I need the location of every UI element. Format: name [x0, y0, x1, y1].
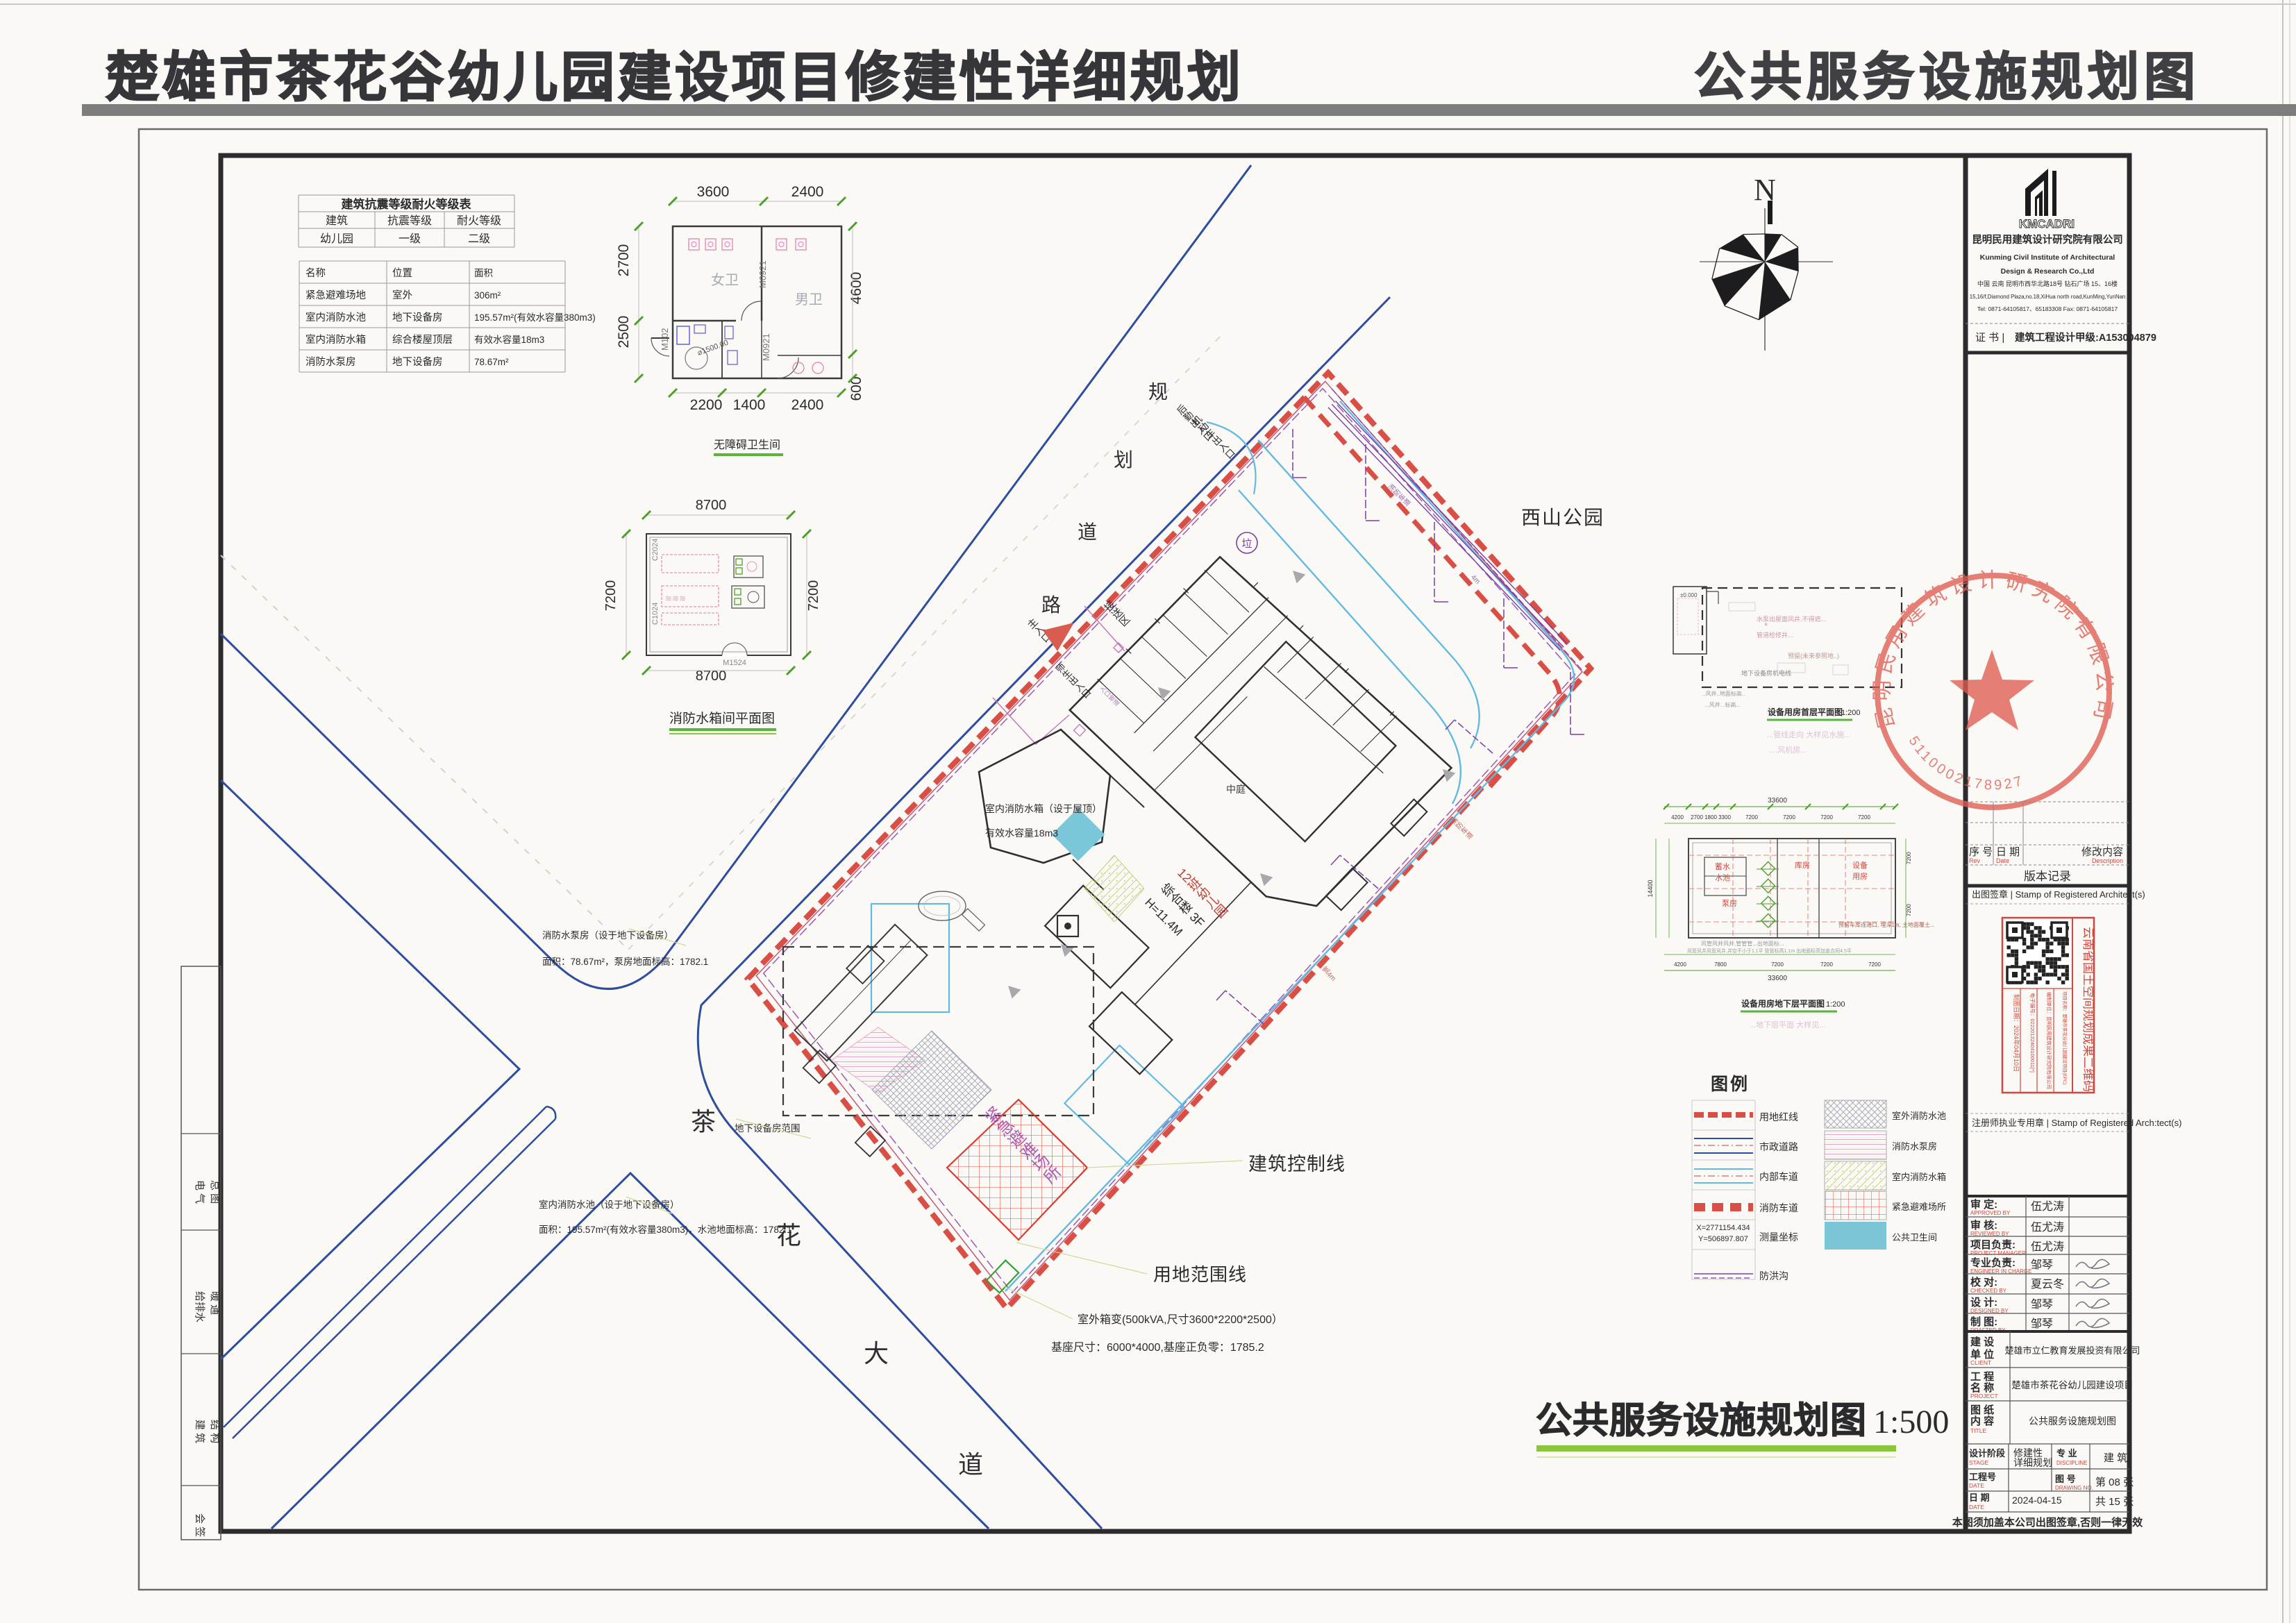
- svg-text:内部车道: 内部车道: [1759, 1171, 1798, 1182]
- svg-text:4200: 4200: [1671, 814, 1684, 821]
- svg-text:...管线走向 大样见水施...: ...管线走向 大样见水施...: [1767, 730, 1850, 739]
- svg-text:工 程: 工 程: [1970, 1371, 1994, 1383]
- svg-text:7200: 7200: [1783, 814, 1795, 821]
- svg-text:DRAWING NO.: DRAWING NO.: [2055, 1485, 2093, 1491]
- svg-text:道: 道: [958, 1450, 983, 1479]
- svg-text:室外箱变(500kVA,尺寸3600*2200*2500）: 室外箱变(500kVA,尺寸3600*2200*2500）: [1078, 1313, 1283, 1326]
- svg-text:室内消防水池: 室内消防水池: [305, 312, 366, 323]
- svg-text:云南省国土空间规划成果二维码: 云南省国土空间规划成果二维码: [2081, 927, 2095, 1092]
- svg-text:昆明民用建筑设计研究院有限公司: 昆明民用建筑设计研究院有限公司: [1972, 233, 2123, 246]
- svg-text:结 构: 结 构: [209, 1420, 221, 1443]
- svg-text:测量坐标: 测量坐标: [1759, 1231, 1798, 1243]
- svg-text:7200: 7200: [1745, 814, 1758, 821]
- svg-text:15,16/f,Diamond Plaza,no.18,Xi: 15,16/f,Diamond Plaza,no.18,XiHua north …: [1970, 294, 2126, 300]
- svg-text:N: N: [1754, 173, 1776, 207]
- svg-text:8700: 8700: [696, 498, 727, 513]
- svg-text:±0.000: ±0.000: [1680, 592, 1698, 598]
- svg-text:图 纸: 图 纸: [1970, 1404, 1994, 1416]
- svg-text:水泵出屋面风井,不得遮...: 水泵出屋面风井,不得遮...: [1757, 615, 1826, 623]
- svg-text:33600: 33600: [1768, 797, 1787, 805]
- svg-text:图例: 图例: [1711, 1075, 1750, 1094]
- svg-text:预留(未来参照地..): 预留(未来参照地..): [1788, 652, 1839, 659]
- svg-text:地下设备房范围: 地下设备房范围: [735, 1122, 801, 1134]
- svg-text:用房: 用房: [1852, 872, 1868, 881]
- svg-text:幼儿园: 幼儿园: [320, 233, 353, 245]
- svg-text:面积: 面积: [474, 268, 493, 278]
- svg-text:公共服务设施规划图: 公共服务设施规划图: [1536, 1401, 1867, 1441]
- svg-text:建筑抗震等级耐火等级表: 建筑抗震等级耐火等级表: [342, 197, 472, 211]
- svg-text:7800: 7800: [1714, 961, 1727, 968]
- svg-text:..风井..地面标高..: ..风井..地面标高..: [1702, 690, 1745, 697]
- svg-text:库房: 库房: [1795, 861, 1810, 870]
- svg-text:大: 大: [864, 1339, 889, 1368]
- svg-text:序 号: 序 号: [1969, 846, 1993, 858]
- svg-text:专 业: 专 业: [2056, 1448, 2077, 1458]
- svg-text:消防水泵房: 消防水泵房: [1892, 1141, 1937, 1152]
- svg-text:第 08 张: 第 08 张: [2095, 1476, 2134, 1488]
- svg-text:防洪沟: 防洪沟: [1759, 1270, 1788, 1281]
- svg-text:....风机房...: ....风机房...: [1769, 745, 1807, 755]
- svg-text:水池: 水池: [1715, 873, 1730, 882]
- svg-text:消防水泵房: 消防水泵房: [305, 356, 356, 368]
- svg-text:消防车道: 消防车道: [1759, 1202, 1798, 1213]
- svg-text:路: 路: [1041, 594, 1061, 616]
- svg-text:详细规划: 详细规划: [2013, 1457, 2052, 1468]
- svg-text:2700: 2700: [1691, 814, 1703, 821]
- svg-text:7200: 7200: [1771, 961, 1784, 968]
- svg-text:审 核:: 审 核:: [1970, 1219, 1997, 1231]
- svg-text:建筑控制线: 建筑控制线: [1248, 1154, 1346, 1175]
- svg-text:专业负责:: 专业负责:: [1970, 1256, 2016, 1269]
- svg-text:版本记录: 版本记录: [2024, 870, 2071, 883]
- svg-text:Y=506897.807: Y=506897.807: [1698, 1235, 1748, 1243]
- svg-text:日 期: 日 期: [1969, 1492, 1990, 1503]
- svg-text:7200: 7200: [1858, 814, 1870, 821]
- svg-text:日 期: 日 期: [1996, 846, 2020, 858]
- svg-text:垃: 垃: [1241, 538, 1252, 550]
- svg-text:C1024: C1024: [651, 603, 660, 625]
- svg-text:项目名称：楚雄市茶花谷幼儿园建设项目(EPC): 项目名称：楚雄市茶花谷幼儿园建设项目(EPC): [2062, 991, 2068, 1085]
- svg-text:Kunming Civil Institute of Arc: Kunming Civil Institute of Architectural: [1980, 253, 2115, 262]
- svg-text:7200: 7200: [1906, 904, 1912, 916]
- svg-text:78.67m²: 78.67m²: [474, 357, 509, 367]
- svg-text:抗震等级: 抗震等级: [387, 215, 432, 227]
- svg-text:M0921: M0921: [761, 333, 771, 361]
- svg-text:公共卫生间: 公共卫生间: [1892, 1232, 1937, 1243]
- svg-text:耐火等级: 耐火等级: [457, 215, 501, 227]
- svg-text:C2024: C2024: [651, 539, 660, 561]
- svg-text:7200: 7200: [1820, 961, 1833, 968]
- svg-text:风管风井风管风井,并空不小于1.1平 管管标高1.1m 出地: 风管风井风管风井,并空不小于1.1平 管管标高1.1m 出地面标高加盖合同4.5…: [1687, 948, 1852, 954]
- svg-text:1400: 1400: [733, 397, 766, 413]
- svg-text:基座尺寸：6000*4000,基座正负零：1785.2: 基座尺寸：6000*4000,基座正负零：1785.2: [1051, 1341, 1264, 1354]
- svg-text:图 号: 图 号: [2055, 1474, 2076, 1484]
- svg-text:面积：78.67m²，泵房地面标高：1782.1: 面积：78.67m²，泵房地面标高：1782.1: [542, 956, 708, 967]
- svg-text:无障碍卫生间: 无障碍卫生间: [714, 439, 780, 451]
- svg-text:女卫: 女卫: [711, 272, 739, 288]
- svg-text:中国 云南 昆明市西华北路18号 钻石广场 15、16楼: 中国 云南 昆明市西华北路18号 钻石广场 15、16楼: [1977, 280, 2118, 287]
- svg-text:Design & Research Co.,Ltd: Design & Research Co.,Ltd: [2001, 267, 2095, 276]
- svg-text:2400: 2400: [791, 184, 824, 200]
- svg-text:DATE: DATE: [1969, 1482, 1984, 1489]
- svg-text:CLIENT: CLIENT: [1970, 1359, 1991, 1366]
- svg-text:7200: 7200: [1868, 961, 1881, 968]
- svg-text:位置: 位置: [392, 267, 412, 279]
- svg-text:CHECKED BY: CHECKED BY: [1970, 1288, 2007, 1294]
- svg-text:1:200: 1:200: [1826, 1000, 1845, 1009]
- svg-text:建 设: 建 设: [1970, 1336, 1994, 1348]
- svg-text:4600: 4600: [848, 272, 864, 305]
- svg-text:制 图:: 制 图:: [1970, 1315, 1997, 1328]
- svg-text:≋≋≋: ≋≋≋: [665, 594, 686, 603]
- svg-text:7200: 7200: [603, 580, 619, 612]
- svg-text:一级: 一级: [399, 233, 421, 245]
- svg-text:项目负责:: 项目负责:: [1970, 1238, 2016, 1251]
- svg-text:X=2771154.434: X=2771154.434: [1696, 1224, 1750, 1232]
- svg-text:室外消防水池: 室外消防水池: [1892, 1111, 1946, 1121]
- svg-text:306m²: 306m²: [474, 290, 501, 301]
- svg-text:综合楼屋顶层: 综合楼屋顶层: [392, 334, 453, 346]
- svg-text:建 筑: 建 筑: [2104, 1452, 2127, 1464]
- svg-text:茶: 茶: [691, 1107, 716, 1136]
- svg-text:内 容: 内 容: [1970, 1415, 1994, 1427]
- svg-text:预留车库连通口, 埋深1m, 土地面覆土...: 预留车库连通口, 埋深1m, 土地面覆土...: [1838, 921, 1935, 928]
- svg-text:PROJECT: PROJECT: [1970, 1393, 1998, 1399]
- svg-text:夏云冬: 夏云冬: [2031, 1278, 2064, 1290]
- svg-text:面积：195.57m²(有效水容量380m3)，水池地面标高: 面积：195.57m²(有效水容量380m3)，水池地面标高：1782.1: [539, 1224, 792, 1235]
- svg-text:14400: 14400: [1647, 880, 1654, 897]
- svg-text:地下设备房机电线: 地下设备房机电线: [1741, 669, 1791, 677]
- svg-text:室外: 室外: [392, 289, 412, 301]
- svg-text:Date: Date: [1996, 857, 2009, 864]
- svg-text:中庭: 中庭: [1226, 784, 1246, 795]
- svg-text:伍尤涛: 伍尤涛: [2031, 1221, 2064, 1234]
- svg-text:设备用房地下层平面图: 设备用房地下层平面图: [1741, 998, 1825, 1009]
- svg-text:二级: 二级: [468, 233, 490, 245]
- svg-text:公共服务设施规划图: 公共服务设施规划图: [1694, 48, 2200, 106]
- svg-text:给排水: 给排水: [194, 1291, 206, 1322]
- svg-text:4200: 4200: [1674, 961, 1686, 968]
- svg-text:1:200: 1:200: [1841, 709, 1861, 717]
- svg-text:1800: 1800: [1704, 814, 1717, 821]
- svg-text:设 计:: 设 计:: [1970, 1296, 1997, 1309]
- svg-text:划: 划: [1114, 449, 1133, 471]
- svg-text:2500: 2500: [616, 316, 632, 348]
- svg-text:DATE: DATE: [1969, 1504, 1984, 1511]
- svg-text:邹琴: 邹琴: [2031, 1318, 2053, 1330]
- svg-text:校 对:: 校 对:: [1970, 1276, 1997, 1288]
- svg-text:Description: Description: [2092, 857, 2123, 864]
- svg-text:ENGINEER IN CHARGE: ENGINEER IN CHARGE: [1970, 1268, 2031, 1275]
- svg-text:伍尤涛: 伍尤涛: [2031, 1241, 2064, 1253]
- svg-text:设计阶段: 设计阶段: [1969, 1448, 2005, 1458]
- svg-text:伍尤涛: 伍尤涛: [2031, 1200, 2064, 1213]
- svg-text:33600: 33600: [1768, 975, 1787, 982]
- svg-text:KMCADRI: KMCADRI: [2019, 217, 2075, 230]
- svg-text:工程号: 工程号: [1969, 1472, 1996, 1482]
- svg-text:总 图: 总 图: [209, 1180, 221, 1204]
- svg-text:制图日期：2024年04月10日: 制图日期：2024年04月10日: [2013, 994, 2020, 1072]
- svg-text:消防水箱间平面图: 消防水箱间平面图: [669, 711, 775, 726]
- svg-text:APPROVED BY: APPROVED BY: [1970, 1210, 2011, 1216]
- svg-text:管道检修井...: 管道检修井...: [1757, 631, 1793, 639]
- svg-text:地下设备房: 地下设备房: [392, 312, 443, 323]
- svg-text:楚雄市立仁教育发展投资有限公司: 楚雄市立仁教育发展投资有限公司: [2004, 1345, 2140, 1356]
- svg-text:2024-04-15: 2024-04-15: [2012, 1495, 2062, 1506]
- svg-text:建筑工程设计甲级:A153004879: 建筑工程设计甲级:A153004879: [2015, 331, 2156, 344]
- svg-text:消防水泵房（设于地下设备房）: 消防水泵房（设于地下设备房）: [542, 930, 673, 941]
- svg-text:建筑: 建筑: [326, 215, 348, 227]
- svg-text:楚雄市茶花谷幼儿园建设项目: 楚雄市茶花谷幼儿园建设项目: [2011, 1379, 2134, 1390]
- svg-text:2200: 2200: [690, 397, 723, 413]
- svg-text:用地红线: 用地红线: [1759, 1111, 1798, 1122]
- svg-text:名称: 名称: [305, 267, 326, 279]
- svg-text:Tel: 0871-64105817、65183308 F: Tel: 0871-64105817、65183308 Fax: 0871-64…: [1977, 305, 2118, 312]
- svg-text:注册师执业专用章 | Stamp of Registered: 注册师执业专用章 | Stamp of Registered Arch:tect…: [1972, 1118, 2181, 1128]
- svg-text:邹琴: 邹琴: [2031, 1259, 2053, 1271]
- svg-text:DESIGNED BY: DESIGNED BY: [1970, 1308, 2009, 1314]
- svg-text:7200: 7200: [806, 580, 821, 612]
- svg-text:电 气: 电 气: [194, 1180, 206, 1204]
- svg-text:设备用房首层平面图: 设备用房首层平面图: [1768, 707, 1843, 717]
- svg-text:编制单位：昆明民用建筑设计研究院有限公司: 编制单位：昆明民用建筑设计研究院有限公司: [2046, 992, 2052, 1089]
- svg-text:PROJECT MANAGER: PROJECT MANAGER: [1970, 1250, 2026, 1256]
- svg-text:道: 道: [1078, 521, 1097, 543]
- svg-text:暖 通: 暖 通: [209, 1291, 221, 1315]
- svg-text:审 定:: 审 定:: [1970, 1198, 1997, 1211]
- svg-text:1:500: 1:500: [1873, 1404, 1949, 1440]
- svg-text:有效水容量18m3: 有效水容量18m3: [474, 334, 544, 345]
- svg-text:STAGE: STAGE: [1969, 1459, 1989, 1466]
- svg-text:TITLE: TITLE: [1970, 1427, 1986, 1434]
- svg-text:证 书 |: 证 书 |: [1975, 332, 2004, 344]
- svg-text:M102: M102: [660, 328, 670, 351]
- svg-text:7200: 7200: [1820, 814, 1833, 821]
- svg-text:规: 规: [1148, 381, 1168, 403]
- svg-text:地下设备房: 地下设备房: [392, 356, 443, 368]
- svg-text:会 签: 会 签: [194, 1513, 206, 1537]
- svg-text:M0921: M0921: [757, 260, 768, 288]
- svg-text:风管风井风井,管管管...出地面标...: 风管风井风井,管管管...出地面标...: [1701, 940, 1784, 947]
- svg-text:REVIEWED BY: REVIEWED BY: [1970, 1231, 2009, 1237]
- svg-text:设备: 设备: [1852, 860, 1868, 870]
- svg-text:2700: 2700: [616, 244, 632, 277]
- svg-text:DISCIPLINE: DISCIPLINE: [2056, 1460, 2087, 1466]
- svg-text:用地范围线: 用地范围线: [1153, 1264, 1247, 1285]
- svg-text:蓄水: 蓄水: [1715, 862, 1730, 871]
- svg-text:室内消防水箱: 室内消防水箱: [305, 334, 366, 346]
- svg-text:男卫: 男卫: [795, 292, 823, 308]
- svg-text:楚雄市茶花谷幼儿园建设项目修建性详细规划: 楚雄市茶花谷幼儿园建设项目修建性详细规划: [106, 48, 1244, 108]
- svg-text:泵房: 泵房: [1722, 899, 1737, 908]
- svg-text:3300: 3300: [1718, 814, 1731, 821]
- svg-text:邹琴: 邹琴: [2031, 1298, 2053, 1311]
- svg-text:...风井...标高...: ...风井...标高...: [1704, 701, 1741, 708]
- svg-text:本图须加盖本公司出图签章,否则一律无效: 本图须加盖本公司出图签章,否则一律无效: [1952, 1516, 2143, 1529]
- svg-text:共 15 张: 共 15 张: [2095, 1496, 2134, 1508]
- svg-text:紧急避难场所: 紧急避难场所: [1892, 1202, 1946, 1212]
- svg-text:市政道路: 市政道路: [1759, 1141, 1798, 1152]
- svg-text:修改内容: 修改内容: [2081, 846, 2123, 858]
- svg-text:7200: 7200: [1906, 852, 1912, 864]
- svg-text:2400: 2400: [791, 397, 824, 413]
- svg-text:M1524: M1524: [723, 659, 746, 667]
- svg-text:紧急避难场地: 紧急避难场地: [305, 289, 366, 301]
- svg-text:建 筑: 建 筑: [194, 1420, 206, 1443]
- svg-text:公共服务设施规划图: 公共服务设施规划图: [2029, 1415, 2116, 1427]
- svg-text:3600: 3600: [697, 184, 730, 200]
- svg-text:Rev: Rev: [1969, 857, 1981, 864]
- svg-text:室内消防水箱: 室内消防水箱: [1892, 1172, 1946, 1182]
- svg-text:西山公园: 西山公园: [1521, 507, 1604, 528]
- svg-text:电子编号：02220132404100011[*]: 电子编号：02220132404100011[*]: [2029, 993, 2036, 1073]
- svg-text:有效水容量18m3: 有效水容量18m3: [985, 827, 1058, 839]
- svg-text:室内消防水箱（设于屋顶）: 室内消防水箱（设于屋顶）: [985, 803, 1102, 814]
- svg-text:出图签章 | Stamp of Registered Arc: 出图签章 | Stamp of Registered Architect(s): [1972, 889, 2145, 900]
- svg-text:...地下层平面 大样见...: ...地下层平面 大样见...: [1750, 1020, 1825, 1029]
- svg-text:195.57m²(有效水容量380m3): 195.57m²(有效水容量380m3): [474, 312, 596, 323]
